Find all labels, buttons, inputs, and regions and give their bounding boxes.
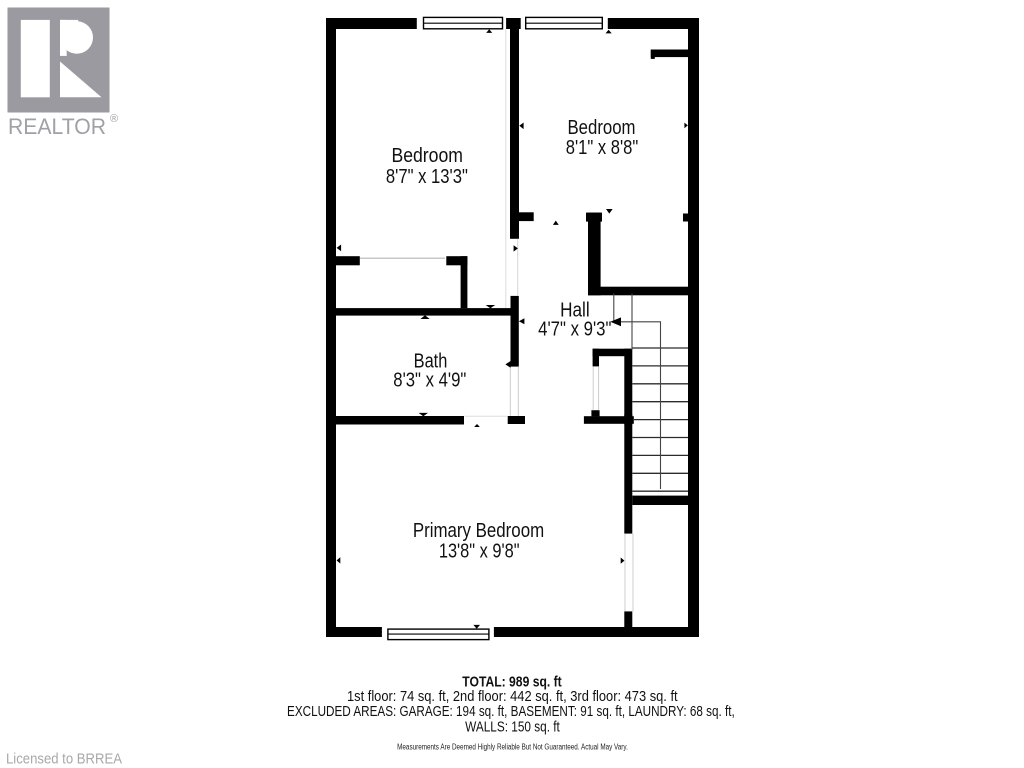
svg-text:Measurements Are Deemed Highly: Measurements Are Deemed Highly Reliable … xyxy=(397,743,628,752)
svg-text:4'7" x 9'3": 4'7" x 9'3" xyxy=(538,319,611,341)
svg-text:Bedroom: Bedroom xyxy=(568,117,636,139)
svg-text:WALLS: 150 sq. ft: WALLS: 150 sq. ft xyxy=(465,720,560,736)
svg-text:8'3" x 4'9": 8'3" x 4'9" xyxy=(393,370,466,392)
svg-text:®: ® xyxy=(110,113,118,125)
svg-text:8'7" x 13'3": 8'7" x 13'3" xyxy=(386,166,468,188)
svg-text:13'8" x 9'8": 13'8" x 9'8" xyxy=(439,541,520,563)
svg-text:Primary Bedroom: Primary Bedroom xyxy=(413,520,544,542)
svg-text:1st floor: 74 sq. ft, 2nd floo: 1st floor: 74 sq. ft, 2nd floor: 442 sq.… xyxy=(347,689,678,705)
svg-text:TOTAL: 989 sq. ft: TOTAL: 989 sq. ft xyxy=(462,674,561,691)
svg-text:Licensed to BRREA: Licensed to BRREA xyxy=(6,752,122,768)
svg-text:Bedroom: Bedroom xyxy=(391,145,463,167)
svg-text:8'1" x 8'8": 8'1" x 8'8" xyxy=(566,137,639,159)
svg-text:EXCLUDED AREAS: GARAGE: 194 sq: EXCLUDED AREAS: GARAGE: 194 sq. ft, BASE… xyxy=(287,704,735,720)
svg-text:REALTOR: REALTOR xyxy=(8,114,106,139)
